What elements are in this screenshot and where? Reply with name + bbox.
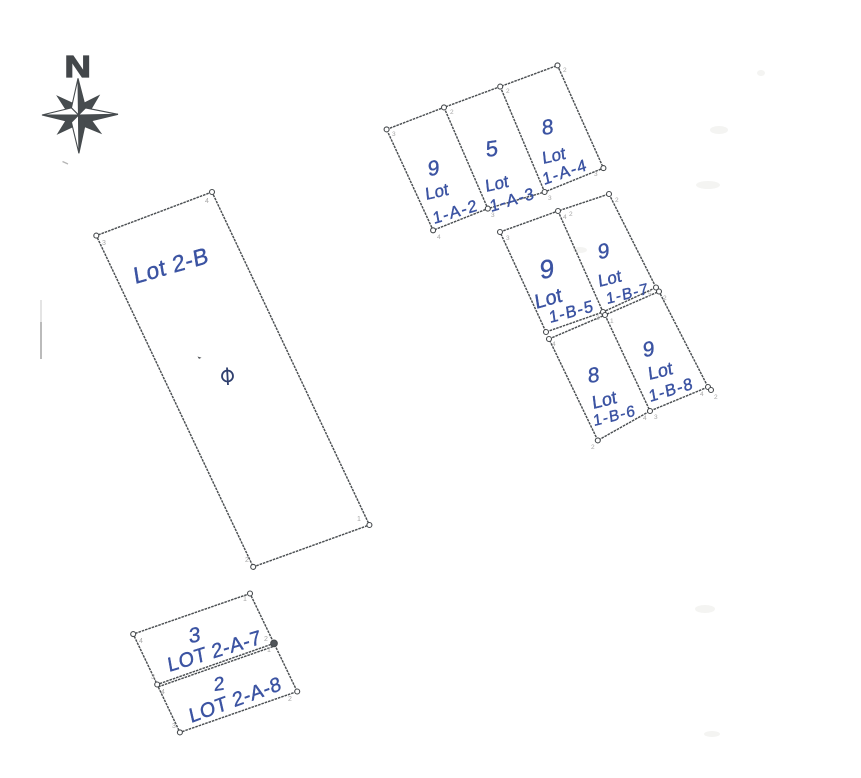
svg-text:2: 2 [245,557,249,564]
svg-text:9: 9 [643,337,655,362]
svg-text:4: 4 [161,689,165,696]
svg-text:2: 2 [569,211,573,218]
svg-text:2: 2 [663,295,667,302]
svg-text:2: 2 [563,67,567,74]
svg-text:3: 3 [506,235,510,242]
svg-text:4: 4 [643,415,647,422]
svg-text:9: 9 [598,239,610,264]
svg-text:4: 4 [437,234,441,241]
svg-text:3: 3 [151,674,155,681]
svg-text:1: 1 [267,647,271,654]
svg-text:2: 2 [615,197,619,204]
svg-text:2: 2 [450,109,454,116]
svg-text:1: 1 [610,318,614,325]
svg-text:4: 4 [563,214,567,221]
svg-text:3: 3 [392,131,396,138]
svg-text:1: 1 [243,596,247,603]
svg-text:3: 3 [654,414,658,421]
svg-text:1: 1 [357,516,361,523]
svg-text:2: 2 [714,394,718,401]
svg-text:5: 5 [486,135,499,162]
svg-text:3: 3 [596,315,600,322]
svg-text:3: 3 [594,171,598,178]
svg-text:4: 4 [139,638,143,645]
svg-text:2: 2 [506,88,510,95]
svg-text:2: 2 [264,636,268,643]
svg-text:8: 8 [542,115,554,140]
svg-text:4: 4 [205,198,209,205]
svg-text:9: 9 [540,253,555,285]
svg-text:2: 2 [591,444,595,451]
svg-text:3: 3 [172,723,176,730]
svg-text:4: 4 [700,391,704,398]
svg-text:2: 2 [288,696,292,703]
svg-text:3: 3 [548,195,552,202]
svg-text:4: 4 [552,341,556,348]
svg-text:9: 9 [428,156,440,181]
svg-text:8: 8 [588,363,600,388]
svg-text:3: 3 [102,240,106,247]
